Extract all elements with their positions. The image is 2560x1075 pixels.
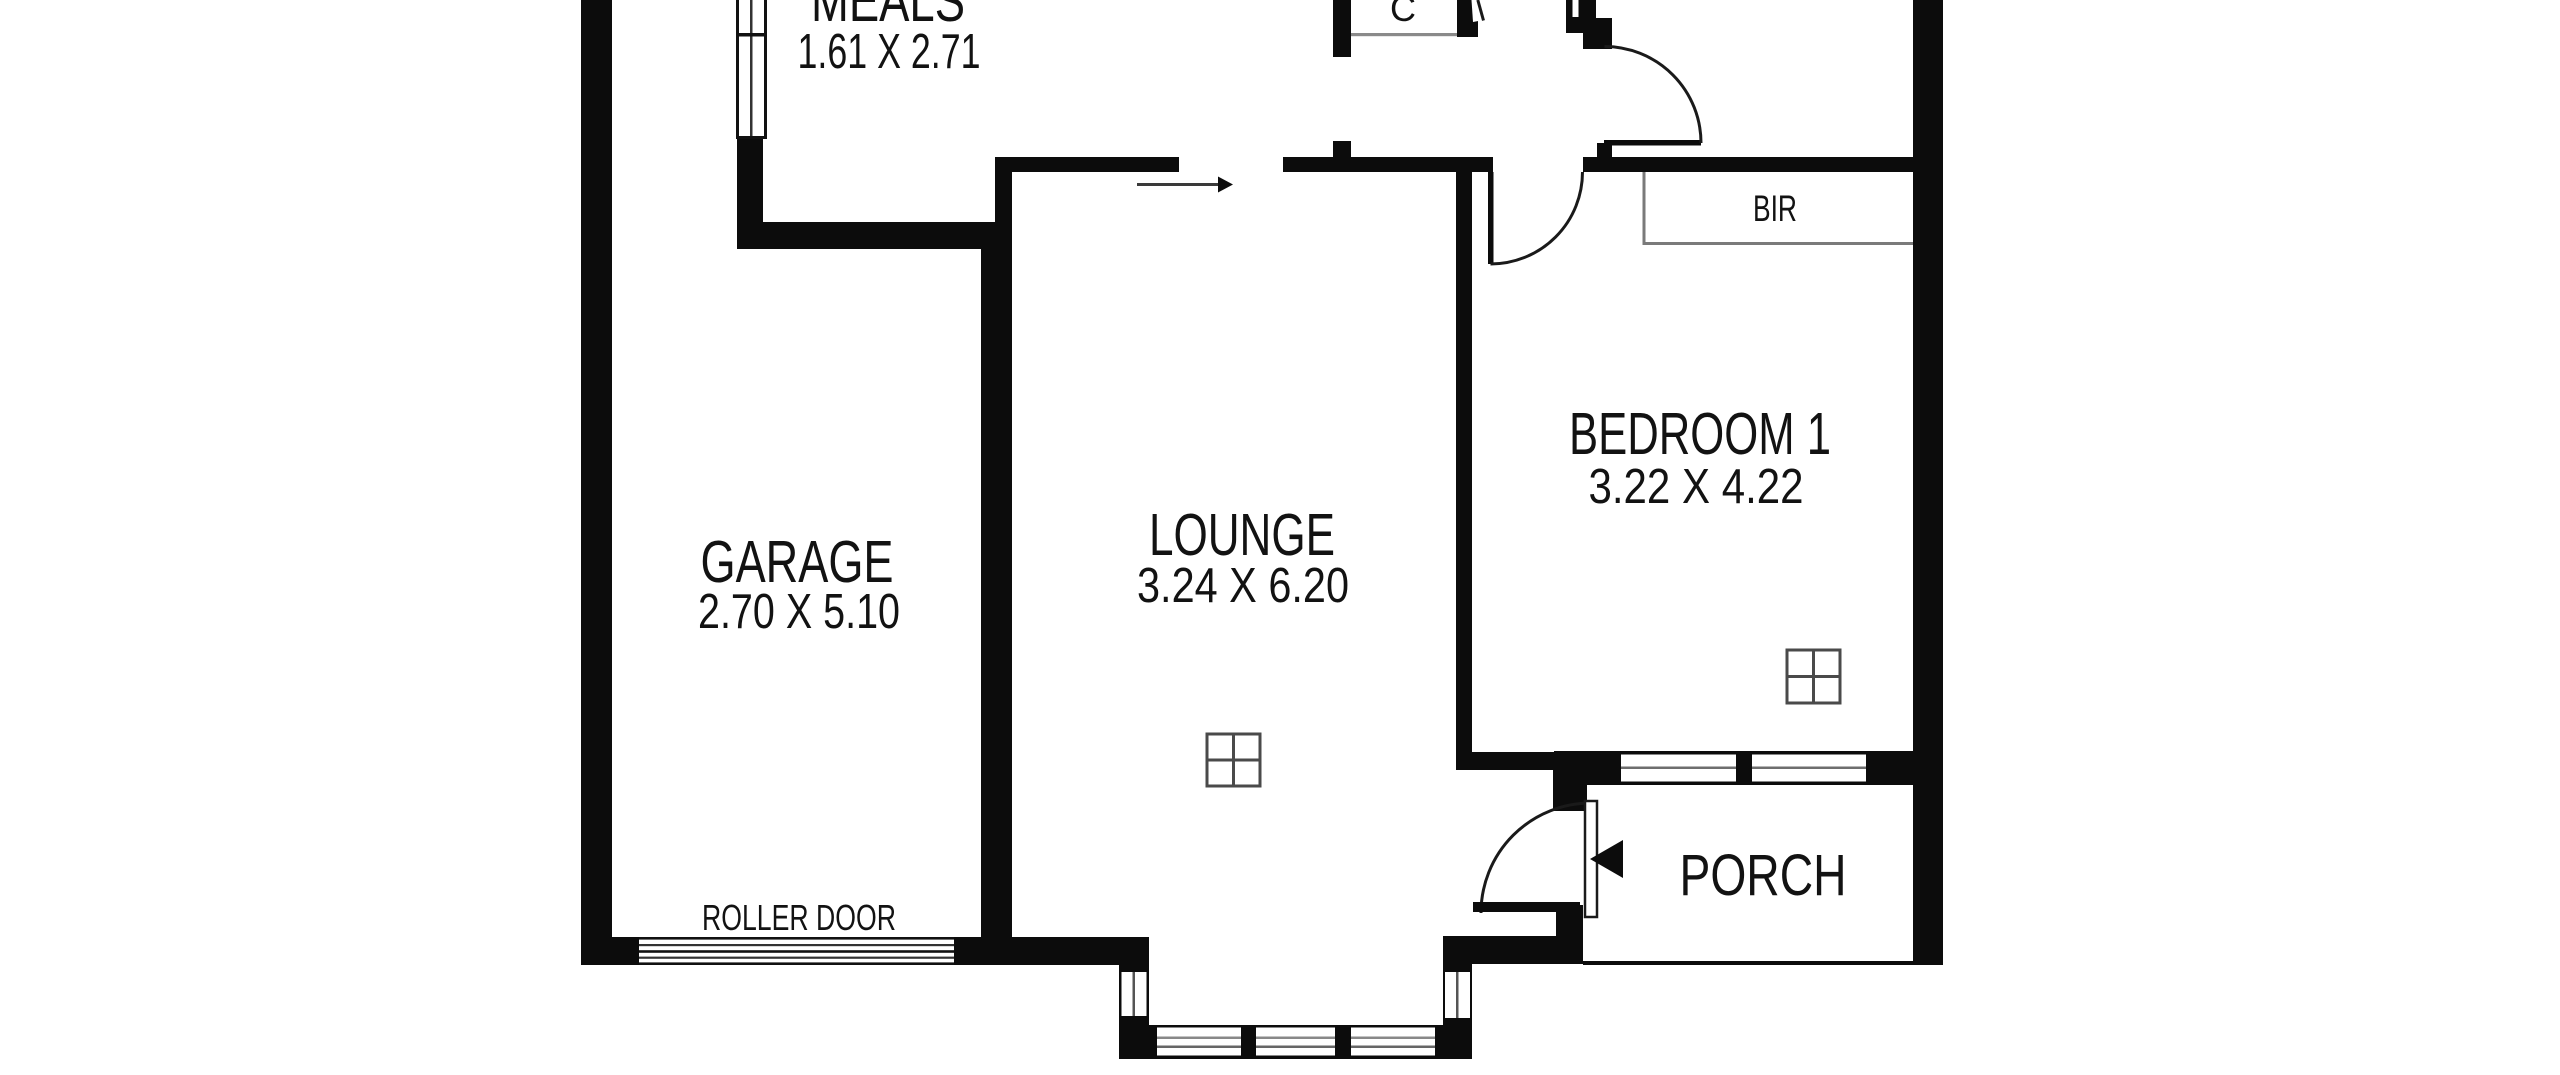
svg-text:C: C	[1390, 0, 1416, 29]
svg-text:BIR: BIR	[1753, 188, 1797, 229]
svg-text:1.61 X 2.71: 1.61 X 2.71	[798, 25, 981, 79]
svg-text:PORCH: PORCH	[1680, 843, 1847, 908]
svg-text:BEDROOM 1: BEDROOM 1	[1569, 401, 1831, 467]
svg-text:2.70 X 5.10: 2.70 X 5.10	[698, 585, 900, 639]
svg-text:3.24 X 6.20: 3.24 X 6.20	[1137, 559, 1349, 613]
svg-text:ROLLER DOOR: ROLLER DOOR	[702, 897, 896, 938]
svg-text:3.22 X 4.22: 3.22 X 4.22	[1589, 460, 1804, 514]
